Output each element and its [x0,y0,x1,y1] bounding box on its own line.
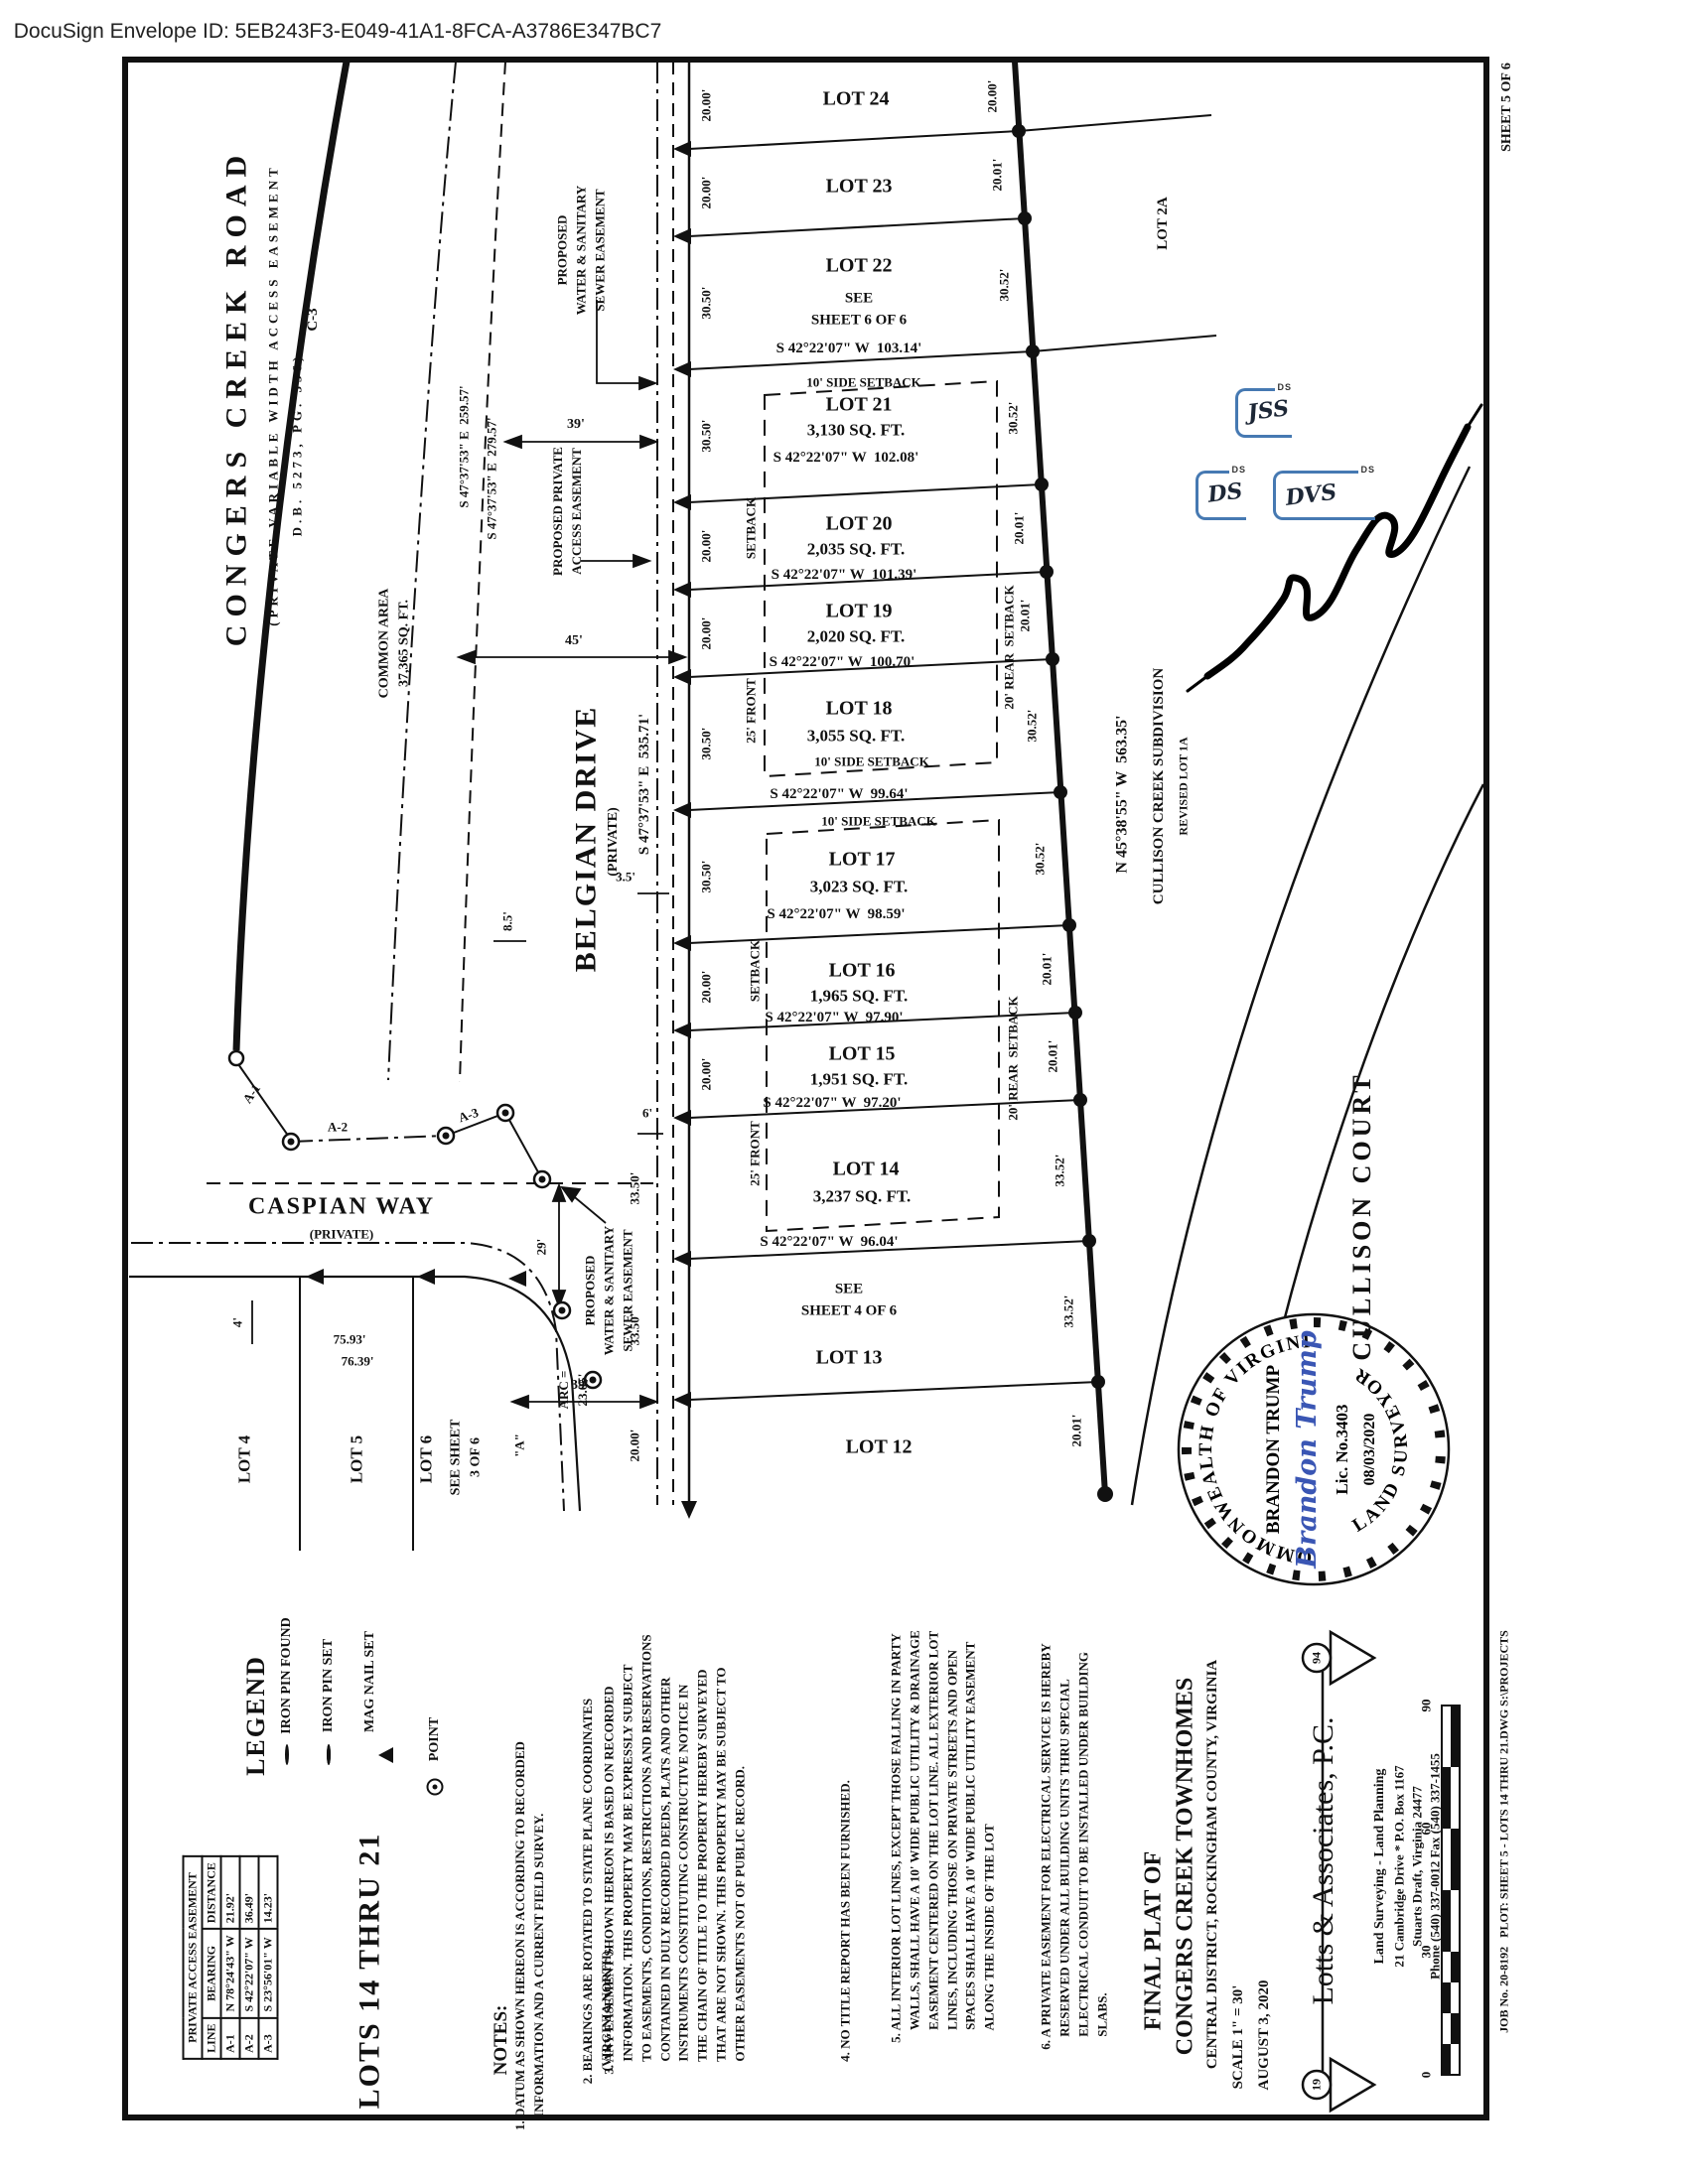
dim-3-5: 3.5' [616,869,635,887]
caspian-way-lines [129,1064,653,1551]
easement-table-title: PRIVATE ACCESS EASEMENT [184,1856,203,2059]
label-lot5: LOT 5 [346,1435,370,1483]
road-belgian-sub: (PRIVATE) [604,807,624,877]
lot-17-east-dim: 30.52' [1032,843,1051,876]
lot-21-east-dim: 30.52' [1005,402,1024,435]
lot-23-west-dim: 20.00' [698,177,717,209]
legend-iron-pin-set: IRON PIN SET [319,1639,339,1732]
easement-water-sewer-top: PROPOSED WATER & SANITARY SEWER EASEMENT [554,186,611,316]
title-scale: SCALE 1" = 30' [1228,1985,1250,2090]
lot-18-bearing: S 42°22'07" W 99.64' [770,784,908,806]
lot-13-name: LOT 13 [816,1344,883,1373]
pen-flourish [1188,405,1481,691]
lot-24-name: LOT 24 [823,85,890,114]
lot-24-east-dim: 20.00' [984,80,1003,113]
label-lot6: LOT 6 [415,1435,440,1483]
lot-20-west-dim: 20.00' [698,530,717,563]
lot-13-east-dim: 33.52' [1060,1296,1079,1328]
lot-15-east-dim: 20.01' [1045,1040,1063,1073]
note-3: 3. ANY EASEMENT SHOWN HEREON IS BASED ON… [601,1634,751,2074]
lot-15-bearing: S 42°22'07" W 97.20' [763,1093,901,1115]
lot-21-west-dim: 30.50' [698,420,717,453]
lot-16-name: LOT 16 [829,957,896,986]
road-congers-sub1: (PRIVATE VARIABLE WIDTH ACCESS EASEMENT [265,164,284,625]
table-row: A-1 N 78°24'43" W 21.92' [221,1856,240,2059]
road-belgian-drive: BELGIAN DRIVE [564,706,608,973]
job-number: JOB No. 20-8192 PLOT: SHEET 5 - LOTS 14 … [1495,1630,1512,2033]
lot-13-west-dim: 33.50' [627,1313,645,1346]
title-district: CENTRAL DISTRICT, ROCKINGHAM COUNTY, VIR… [1202,1660,1224,2069]
firm-name: Lotts & Associates, P.C. [1279,1716,1338,2019]
lot-15-name: LOT 15 [829,1040,896,1069]
firm-flag-94: 94 [1308,1652,1325,1664]
title-project-name: CONGERS CREEK TOWNHOMES [1169,1678,1203,2056]
table-row: A-3 S 23°56'01" W 14.23' [259,1856,278,2059]
lot-line-arrows [673,141,697,1519]
dim-75-93: 75.93' [334,1331,366,1350]
point-a2-label: A-2 [328,1119,348,1138]
lot-20-east-dim: 20.01' [1011,512,1030,545]
lot-16-bearing: S 42°22'07" W 97.90' [765,1008,903,1029]
lot-18-sqft: 3,055 SQ. FT. [807,725,905,750]
page: { "header": {"envelope": "DocuSign Envel… [0,0,1688,2184]
lot-18-name: LOT 18 [826,695,893,724]
lot-15-sqft: 1,951 SQ. FT. [810,1068,908,1093]
firm-address2: Stuarts Draft, Virginia 24477 [1409,1786,1428,1947]
scalebar-60: 60 [1418,1823,1437,1836]
seal-license: Lic. No.3403 [1333,1404,1351,1494]
road-caspian-sub: (PRIVATE) [310,1226,374,1245]
lot-19-east-dim: 20.01' [1017,600,1036,632]
setback-rear-box2: 20' REAR SETBACK [1005,996,1024,1120]
lot-17-bearing: S 42°22'07" W 98.59' [767,904,905,926]
setback-side-box2: 10' SIDE SETBACK [821,813,936,832]
firm-flag-19: 19 [1308,2079,1325,2091]
private-access-easement-table: PRIVATE ACCESS EASEMENT LINE BEARING DIS… [183,1855,279,2060]
scalebar-0: 0 [1418,2072,1437,2079]
common-area-label: COMMON AREA 37,365 SQ. FT. [375,589,416,699]
firm-tagline: Land Surveying - Land Planning [1370,1769,1390,1965]
scalebar-30: 30 [1418,1946,1437,1959]
bearing-corridor-1: S 47°37'53" E 259.57' [456,385,475,507]
setback-front-box1-b: 25' FRONT [743,678,762,743]
dim-4: 4' [229,1317,248,1327]
lot-18-east-dim: 30.52' [1024,710,1043,743]
label-lot2a: LOT 2A [1153,197,1175,250]
dim-8-5: 8.5' [499,911,518,931]
lot-22-west-dim: 30.50' [698,287,717,320]
dim-39-top: 39' [567,415,585,435]
dim-29: 29' [533,1239,552,1256]
lot-23-east-dim: 20.01' [989,159,1008,192]
lot-20-sqft: 2,035 SQ. FT. [807,538,905,563]
cullison-subdivision: CULLISON CREEK SUBDIVISION [1149,668,1171,904]
title-final-plat: FINAL PLAT OF [1137,1851,1172,2030]
dim-6: 6' [642,1105,652,1124]
table-row: A-2 S 42°22'07" W 36.49' [240,1856,259,2059]
lot-14-name: LOT 14 [833,1156,900,1184]
lot-16-sqft: 1,965 SQ. FT. [810,985,908,1010]
lot-14-bearing: S 42°22'07" W 96.04' [760,1232,898,1254]
seal-surveyor-name: BRANDON TRUMP [1263,1365,1284,1535]
docusign-initial-dvs[interactable]: DS DVS [1273,471,1375,520]
sheet-number: SHEET 5 OF 6 [1497,63,1517,152]
easement-col-line: LINE [203,2018,221,2059]
iron-pin-found-icon [285,1746,289,1764]
initial-value: DS [1196,471,1248,509]
note-1: 1. DATUM AS SHOWN HEREON IS ACCORDING TO… [511,1741,549,2130]
lot-19-bearing: S 42°22'07" W 100.70' [770,652,915,674]
initial-value: DVS [1274,468,1376,512]
legend-mag-nail-set: MAG NAIL SET [360,1631,380,1732]
title-date: AUGUST 3, 2020 [1254,1980,1276,2091]
belgian-drive-lines [657,62,689,1505]
lot-16-east-dim: 20.01' [1039,953,1057,986]
docusign-initial-ds[interactable]: DS DS [1196,471,1246,520]
setback-side-box1: 10' SIDE SETBACK [806,374,921,393]
bearing-corridor-2: S 47°37'53" E 279.57' [484,417,502,539]
easement-table-wrap: PRIVATE ACCESS EASEMENT LINE BEARING DIS… [183,1855,279,2060]
point-icon [427,1779,444,1796]
seal-date: 08/03/2020 [1361,1414,1378,1486]
east-boundary-line [1012,62,1113,1502]
lot-20-bearing: S 42°22'07" W 101.39' [772,565,917,587]
lot-22-see: SEE SHEET 6 OF 6 [811,288,907,332]
east-boundary-bearing: N 45°38'55" W 563.35' [1110,715,1133,873]
scalebar-90: 90 [1418,1700,1437,1712]
road-cullison-court: CULLISON COURT [1343,1071,1381,1360]
note-4: 4. NO TITLE REPORT HAS BEEN FURNISHED. [837,1780,856,2062]
label-curve-a: "A" [511,1433,530,1457]
road-congers-sub2: D.B. 5273, PG. 336) [289,353,308,537]
docusign-initial-jss[interactable]: DS JSS [1235,388,1292,438]
road-congers-creek: CONGERS CREEK ROAD [214,148,258,646]
setback-front-box2-a: SETBACK [747,940,766,1002]
lot-12-east-dim: 20.01' [1068,1415,1087,1447]
lot-17-west-dim: 30.50' [698,861,717,893]
lot-16-west-dim: 20.00' [698,971,717,1004]
lot-22-east-dim: 30.52' [996,269,1015,302]
note-6: 6. A PRIVATE EASEMENT FOR ELECTRICAL SER… [1037,1643,1111,2050]
bearing-belgian: S 47°37'53" E 535.71' [634,714,656,855]
label-lot6-see-sheet: SEE SHEET 3 OF 6 [447,1420,488,1496]
lot-24-west-dim: 20.00' [698,89,717,122]
lot-12-name: LOT 12 [846,1433,913,1462]
lot-19-sqft: 2,020 SQ. FT. [807,625,905,650]
firm-name-text: Lotts & Associates, P.C. [1307,1716,1339,2004]
legend-iron-pin-found: IRON PIN FOUND [277,1617,297,1733]
legend-title: LEGEND [237,1655,275,1776]
lot-14-sqft: 3,237 SQ. FT. [813,1185,911,1210]
lot-13-see: SEE SHEET 4 OF 6 [801,1279,897,1322]
lot-22-name: LOT 22 [826,252,893,281]
legend-point: POINT [425,1717,445,1761]
lot-22-bearing: S 42°22'07" W 103.14' [776,339,922,360]
road-caspian-way: CASPIAN WAY [248,1190,435,1225]
road-congers-c3: C-3 [303,308,325,331]
lot-14-west-dim: 33.50' [627,1172,645,1205]
easement-col-bearing: BEARING [203,1929,221,2017]
lot-18-west-dim: 30.50' [698,728,717,760]
lot-20-name: LOT 20 [826,510,893,539]
lot-17-sqft: 3,023 SQ. FT. [810,876,908,900]
easement-col-distance: DISTANCE [203,1856,221,1929]
easement-private-access: PROPOSED PRIVATE ACCESS EASEMENT [549,447,587,576]
setback-front-box1-a: SETBACK [743,497,762,559]
dim-76-39: 76.39' [342,1353,374,1372]
lot-19-west-dim: 20.00' [698,617,717,650]
setback-front-box2-b: 25' FRONT [747,1121,766,1185]
note-5: 5. ALL INTERIOR LOT LINES, EXCEPT THOSE … [887,1630,999,2043]
lot-21-sqft: 3,130 SQ. FT. [807,419,905,444]
initial-value: JSS [1236,388,1294,427]
seal-signature: Brandon Trump [1292,1330,1323,1570]
firm-address1: 21 Cambridge Drive * P.O. Box 1167 [1391,1765,1410,1967]
lot-21-name: LOT 21 [826,391,893,420]
mag-nail-set-icon [361,1747,379,1763]
lot-21-bearing: S 42°22'07" W 102.08' [774,448,919,470]
dim-45: 45' [565,631,583,651]
lot-17-name: LOT 17 [829,846,896,875]
lot-19-name: LOT 19 [826,598,893,626]
lot-15-west-dim: 20.00' [698,1058,717,1091]
title-lots-range: LOTS 14 THRU 21 [348,1833,391,2110]
dim-39-bottom: 39' [571,1376,589,1396]
docusign-envelope-id: DocuSign Envelope ID: 5EB243F3-E049-41A1… [14,17,662,47]
label-lot4: LOT 4 [233,1435,258,1483]
lot-23-name: LOT 23 [826,173,893,202]
revised-lot-1a: REVISED LOT 1A [1175,737,1192,835]
lot-12-west-dim: 20.00' [627,1430,645,1462]
lot2a-lines [1019,115,1216,351]
lot-14-east-dim: 33.52' [1052,1155,1070,1187]
iron-pin-set-icon [327,1746,331,1764]
lot-18-side-setback: 10' SIDE SETBACK [814,753,929,772]
